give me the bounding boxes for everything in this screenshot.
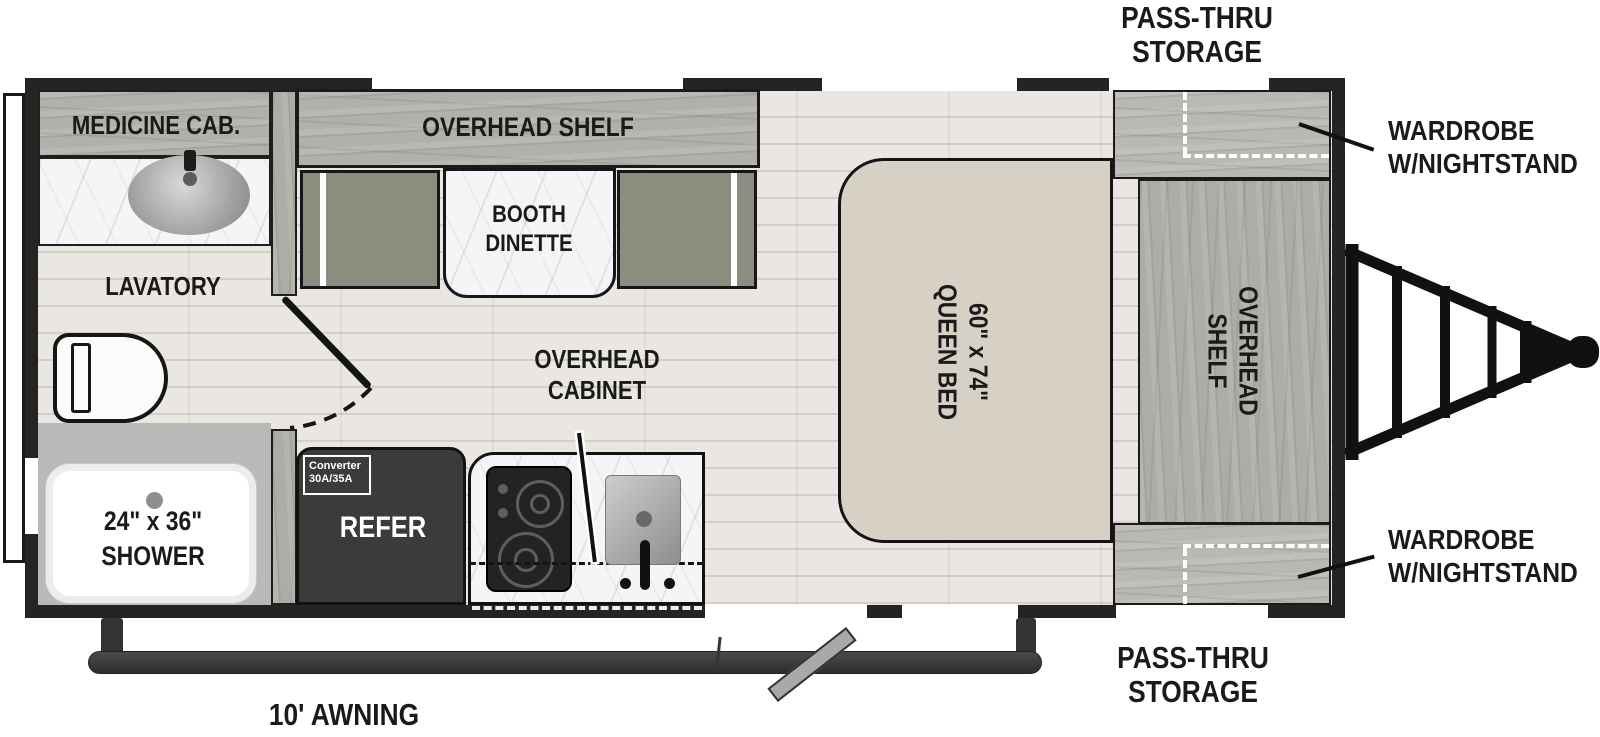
overhead-shelf-bedroom-line2: SHELF bbox=[1202, 286, 1233, 416]
awning-label: 10' AWNING bbox=[269, 697, 419, 734]
entry-door-opening bbox=[705, 604, 867, 618]
passthru-storage-top-line2: STORAGE bbox=[1132, 34, 1262, 71]
passthru-dash-bottom-horizontal bbox=[1183, 544, 1329, 548]
shower-label-line2: SHOWER bbox=[101, 541, 204, 573]
bench-cushion-line bbox=[320, 173, 326, 286]
refrigerator-label: REFER bbox=[340, 510, 426, 545]
overhead-cabinet-label-line2: CABINET bbox=[548, 375, 646, 406]
cooktop-knob bbox=[498, 484, 508, 494]
queen-bed-label-line2: QUEEN BED bbox=[932, 284, 963, 420]
bench-cushion-line bbox=[731, 173, 737, 286]
window-left bbox=[25, 458, 38, 534]
passthru-dash-bottom-vertical bbox=[1183, 548, 1187, 604]
wardrobe-top-label-line2: W/NIGHTSTAND bbox=[1388, 147, 1578, 180]
passthru-dash-top-vertical bbox=[1183, 92, 1187, 155]
wardrobe-nightstand-top bbox=[1113, 90, 1331, 179]
booth-dinette-label-line1: BOOTH bbox=[492, 201, 566, 229]
dinette-bench-left bbox=[300, 170, 440, 289]
rear-bumper bbox=[3, 93, 25, 563]
awning-bar bbox=[88, 651, 1042, 674]
window-bottom-passthru bbox=[1116, 604, 1268, 618]
lavatory-label: LAVATORY bbox=[105, 271, 220, 302]
overhead-cabinet-label-line1: OVERHEAD bbox=[534, 344, 659, 375]
overhead-shelf-bedroom-line1: OVERHEAD bbox=[1233, 286, 1264, 416]
passthru-storage-bottom-line1: PASS-THRU bbox=[1117, 640, 1269, 677]
burner-bottom-hub bbox=[514, 548, 538, 572]
hitch-tongue bbox=[1345, 238, 1600, 466]
burner-top-hub bbox=[530, 494, 550, 514]
vanity-faucet-dot bbox=[183, 172, 197, 186]
dinette-bench-right bbox=[617, 170, 757, 289]
queen-bed-label-line1: 60" x 74" bbox=[963, 284, 994, 420]
converter-label-line2: 30A/35A bbox=[309, 473, 365, 486]
toilet bbox=[53, 333, 168, 423]
wardrobe-nightstand-bottom bbox=[1113, 523, 1331, 605]
sink-knob bbox=[664, 578, 675, 589]
counter-wall-vent bbox=[472, 606, 702, 610]
passthru-dash-top-horizontal bbox=[1183, 154, 1329, 158]
toilet-tank bbox=[71, 343, 91, 413]
passthru-storage-top-line1: PASS-THRU bbox=[1121, 0, 1273, 37]
wardrobe-bottom-label-line2: W/NIGHTSTAND bbox=[1388, 556, 1578, 589]
wardrobe-bottom-label-line1: WARDROBE bbox=[1388, 523, 1534, 556]
overhead-shelf-bedroom-label: OVERHEAD SHELF bbox=[1202, 286, 1263, 416]
cooktop-knob bbox=[498, 508, 508, 518]
booth-dinette-label-line2: DINETTE bbox=[485, 230, 572, 258]
overhead-shelf-label: OVERHEAD SHELF bbox=[422, 112, 634, 144]
wardrobe-top-label-line1: WARDROBE bbox=[1388, 114, 1534, 147]
medicine-cabinet-label: MEDICINE CAB. bbox=[72, 110, 240, 141]
queen-bed-label: 60" x 74" QUEEN BED bbox=[932, 284, 993, 420]
sink-knob bbox=[620, 578, 631, 589]
converter-box: Converter 30A/35A bbox=[303, 455, 371, 495]
bathroom-door-swing-arc bbox=[250, 290, 395, 440]
sink-faucet bbox=[640, 540, 650, 590]
passthru-storage-bottom-line2: STORAGE bbox=[1128, 674, 1258, 711]
sink-drain-dot bbox=[636, 511, 652, 527]
bathroom-wall-bottom bbox=[271, 429, 297, 605]
bathroom-wall-top bbox=[271, 90, 297, 296]
window-top-bed bbox=[822, 78, 1017, 91]
converter-label-line1: Converter bbox=[309, 460, 365, 473]
floorplan-diagram: MEDICINE CAB. LAVATORY 24" x 36" SHOWER … bbox=[0, 0, 1600, 737]
vanity-faucet bbox=[184, 150, 196, 171]
window-bottom-bed bbox=[902, 604, 1018, 618]
cooktop bbox=[486, 466, 572, 592]
shower-label-line1: 24" x 36" bbox=[104, 506, 202, 538]
